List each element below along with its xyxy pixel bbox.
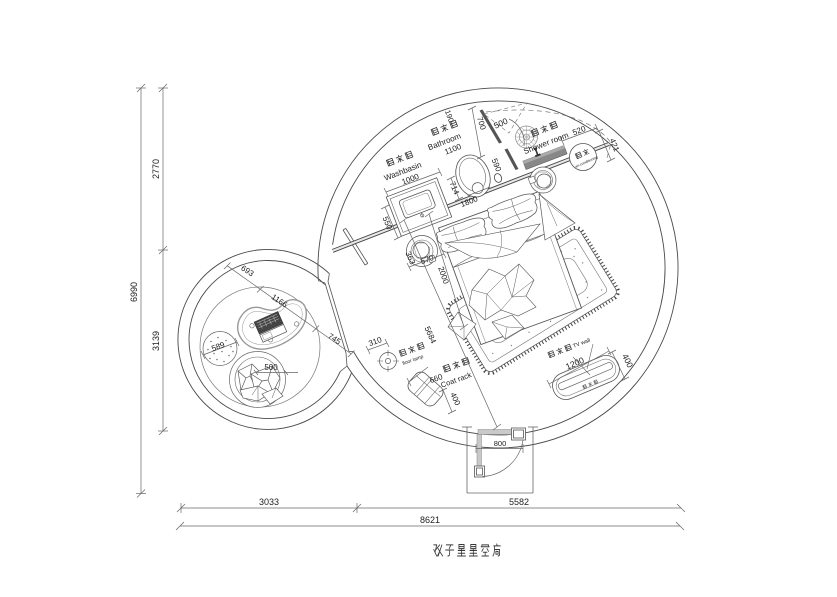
svg-text:5582: 5582 xyxy=(509,497,529,507)
svg-text:3139: 3139 xyxy=(151,331,161,351)
svg-text:6990: 6990 xyxy=(129,282,139,302)
svg-text:3033: 3033 xyxy=(259,497,279,507)
svg-text:800: 800 xyxy=(494,439,507,448)
svg-text:8621: 8621 xyxy=(420,515,440,525)
svg-text:500: 500 xyxy=(264,363,278,372)
svg-text:2770: 2770 xyxy=(151,159,161,179)
